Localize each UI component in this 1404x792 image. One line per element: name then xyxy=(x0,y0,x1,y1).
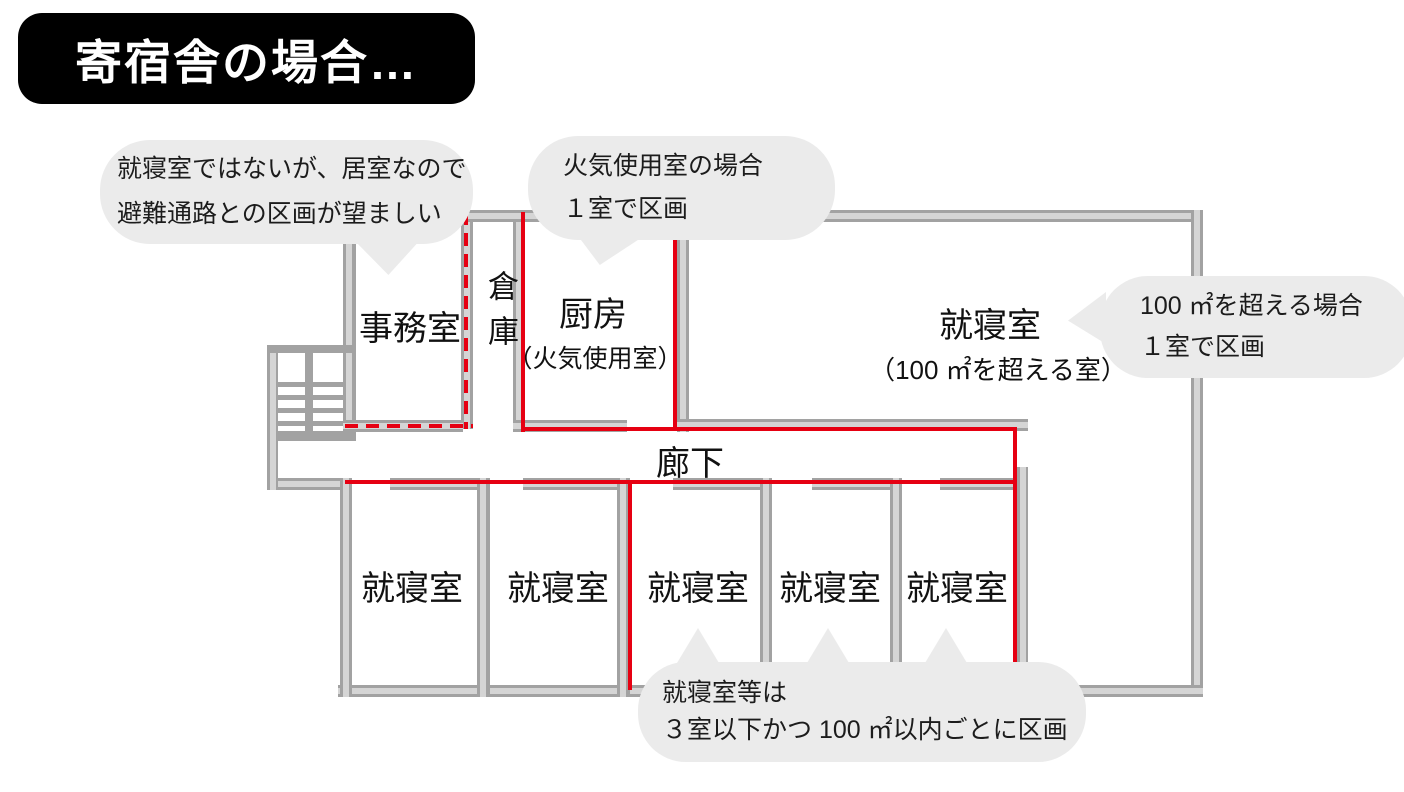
callout-large-bedroom: 100 ㎡を超える場合 １室で区画 xyxy=(1100,276,1404,378)
callout-bedrooms: 就寝室等は ３室以下かつ 100 ㎡以内ごとに区画 xyxy=(638,662,1086,762)
callout-bedrooms-line1: 就寝室等は xyxy=(662,680,1086,708)
wall-corridor-bottom-left xyxy=(267,478,345,490)
callout-office-line2: 避難通路との区画が望ましい xyxy=(117,201,473,229)
room-label-office: 事務室 xyxy=(330,301,490,350)
wall-stair-landing xyxy=(278,431,352,441)
fire-compartment-line-dashed-office-bottom xyxy=(345,424,473,428)
callout-office-line1: 就寝室ではないが、居室なので xyxy=(117,156,473,184)
staircase-center-divider xyxy=(305,353,313,431)
callout-office: 就寝室ではないが、居室なので 避難通路との区画が望ましい xyxy=(100,140,473,244)
page-title: 寄宿舎の場合… xyxy=(18,13,475,104)
room-label-large-bedroom: 就寝室 xyxy=(890,298,1090,347)
callout-large-bedroom-line2: １室で区画 xyxy=(1140,334,1404,362)
staircase-tread xyxy=(278,421,343,426)
callout-kitchen: 火気使用室の場合 １室で区画 xyxy=(528,136,835,240)
callout-kitchen-line1: 火気使用室の場合 xyxy=(563,153,835,181)
staircase-tread xyxy=(278,395,343,400)
callout-kitchen-line2: １室で区画 xyxy=(563,196,835,224)
room-label-bedroom-2: 就寝室 xyxy=(478,561,638,610)
callout-large-bedroom-line1: 100 ㎡を超える場合 xyxy=(1140,293,1404,321)
fire-compartment-line-kitchen-right xyxy=(673,212,677,431)
callout-bedrooms-line2: ３室以下かつ 100 ㎡以内ごとに区画 xyxy=(662,717,1086,745)
room-label-corridor: 廊下 xyxy=(610,436,770,485)
room-label-bedroom-1: 就寝室 xyxy=(332,561,492,610)
room-label-kitchen-sub: （火気使用室） xyxy=(500,339,690,375)
room-label-kitchen: 厨房 xyxy=(513,287,673,336)
wall-stair-left xyxy=(267,345,278,490)
staircase-tread xyxy=(278,382,343,387)
dormitory-fire-compartment-diagram: 寄宿舎の場合… 事務室 倉庫 厨房 （火気使用室） 就寝室 （100 ㎡を超える… xyxy=(0,0,1404,792)
staircase-tread xyxy=(278,408,343,413)
wall-kitchen-right xyxy=(677,222,689,432)
fire-compartment-line-corridor-top xyxy=(523,427,1017,431)
fire-compartment-line-right-vertical xyxy=(1013,427,1017,690)
room-label-bedroom-5: 就寝室 xyxy=(877,561,1037,610)
callout-kitchen-tail xyxy=(578,236,644,265)
